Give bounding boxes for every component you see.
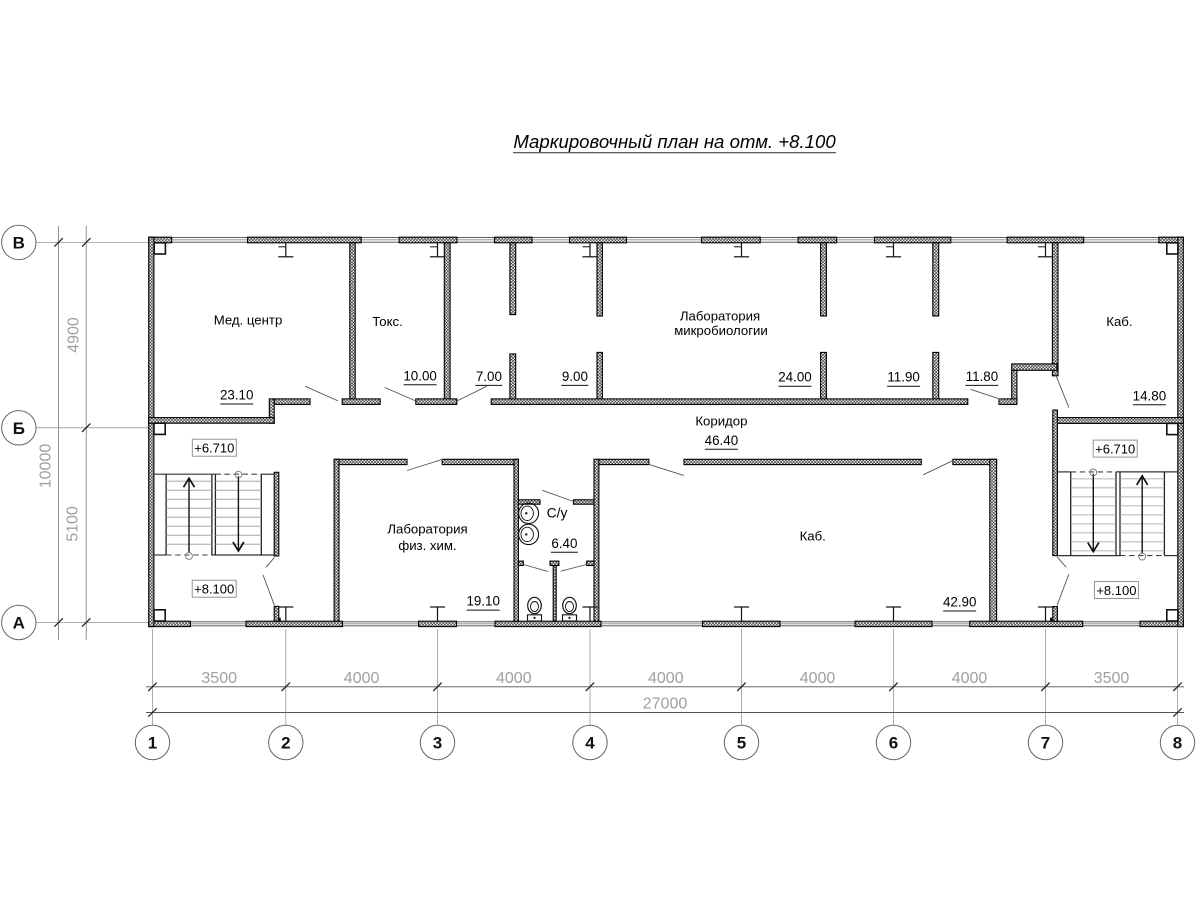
svg-text:23.10: 23.10	[220, 388, 254, 403]
svg-text:+8.100: +8.100	[1096, 583, 1136, 598]
svg-text:14.80: 14.80	[1133, 388, 1167, 403]
svg-text:Токс.: Токс.	[372, 314, 403, 329]
svg-text:6.40: 6.40	[551, 536, 577, 551]
svg-text:11.90: 11.90	[887, 370, 920, 385]
svg-text:Б: Б	[13, 419, 25, 438]
svg-text:2: 2	[281, 734, 290, 753]
svg-text:9.00: 9.00	[562, 369, 588, 384]
svg-text:4: 4	[585, 734, 595, 753]
svg-text:4000: 4000	[800, 670, 836, 687]
svg-text:4000: 4000	[648, 670, 684, 687]
svg-text:+6.710: +6.710	[1095, 441, 1135, 456]
svg-text:Маркировочный план на отм. +8.: Маркировочный план на отм. +8.100	[513, 131, 836, 152]
svg-text:Каб.: Каб.	[1106, 314, 1132, 329]
svg-text:1: 1	[148, 734, 157, 753]
svg-text:микробиологии: микробиологии	[674, 323, 768, 338]
svg-text:3500: 3500	[201, 670, 237, 687]
svg-text:4000: 4000	[496, 670, 532, 687]
svg-text:11.80: 11.80	[966, 369, 999, 384]
svg-text:Каб.: Каб.	[800, 529, 826, 544]
svg-text:Лаборатория: Лаборатория	[387, 522, 467, 537]
svg-text:6: 6	[889, 734, 898, 753]
svg-text:5: 5	[737, 734, 746, 753]
svg-text:5100: 5100	[65, 506, 82, 542]
svg-text:С/у: С/у	[547, 506, 568, 521]
svg-text:46.40: 46.40	[705, 433, 739, 448]
svg-text:3500: 3500	[1094, 670, 1130, 687]
svg-text:24.00: 24.00	[778, 370, 812, 385]
svg-text:Мед. центр: Мед. центр	[214, 313, 283, 328]
svg-text:27000: 27000	[643, 696, 688, 713]
svg-text:4900: 4900	[66, 317, 83, 353]
svg-text:Лаборатория: Лаборатория	[680, 309, 760, 324]
svg-text:7.00: 7.00	[476, 369, 502, 384]
svg-text:10.00: 10.00	[403, 368, 437, 383]
svg-text:42.90: 42.90	[943, 595, 977, 610]
svg-text:10000: 10000	[38, 444, 55, 489]
svg-text:+8.100: +8.100	[194, 582, 234, 597]
svg-text:+6.710: +6.710	[194, 441, 234, 456]
svg-text:19.10: 19.10	[466, 594, 500, 609]
svg-text:7: 7	[1041, 734, 1050, 753]
svg-text:3: 3	[433, 734, 442, 753]
svg-text:4000: 4000	[952, 670, 988, 687]
svg-text:А: А	[13, 614, 25, 633]
svg-text:4000: 4000	[344, 670, 380, 687]
svg-text:Коридор: Коридор	[695, 414, 747, 429]
svg-text:В: В	[13, 234, 25, 253]
svg-text:физ. хим.: физ. хим.	[398, 538, 456, 553]
svg-text:8: 8	[1173, 734, 1182, 753]
